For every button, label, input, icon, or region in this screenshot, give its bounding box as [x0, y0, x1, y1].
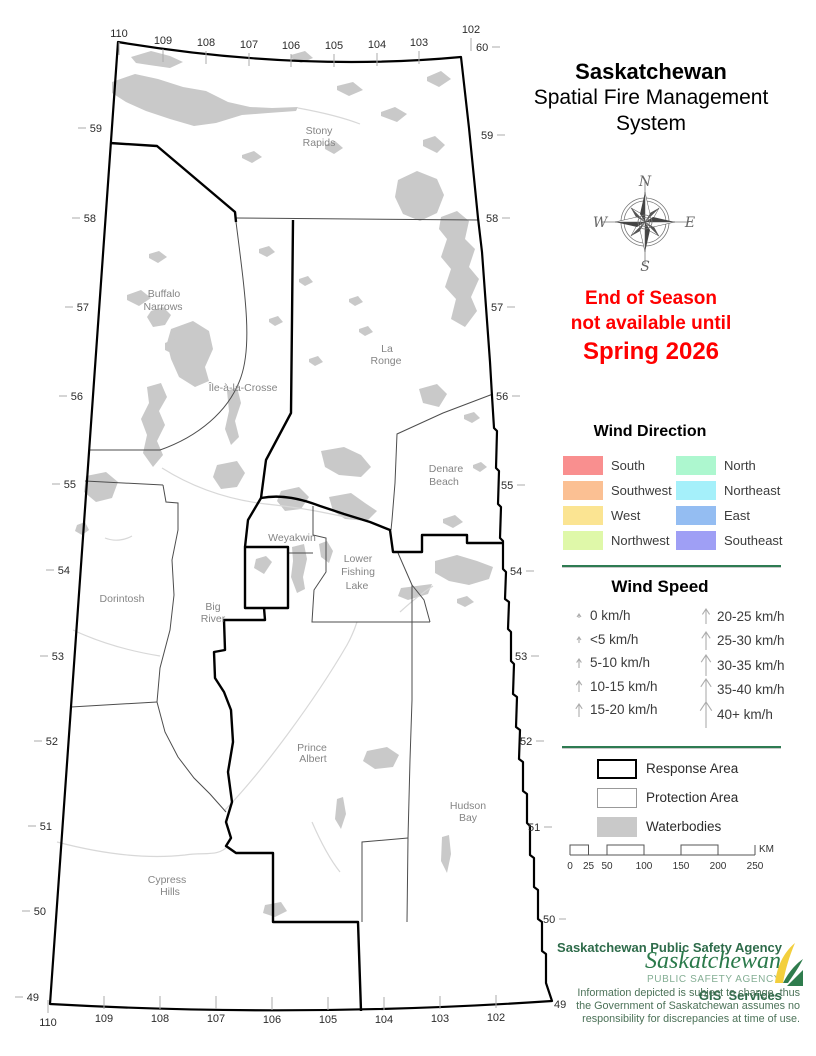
longitude-label: 107 — [207, 1013, 225, 1025]
place-label: Beach — [429, 476, 459, 488]
longitude-label: 103 — [431, 1013, 449, 1025]
response-area-swatch — [597, 759, 637, 779]
scale-tick-label: 25 — [583, 861, 595, 872]
scale-tick-label: 150 — [673, 861, 690, 872]
wind-direction-item: Southeast — [676, 528, 783, 553]
protection-area-boundaries — [71, 218, 493, 922]
wind-speed-label: 5-10 km/h — [590, 655, 650, 670]
place-label: Stony — [306, 125, 334, 137]
latitude-label: 50 — [34, 906, 46, 918]
wind-speed-item: 30-35 km/h — [695, 653, 785, 678]
wind-arrow-icon — [569, 702, 589, 718]
map-title-line2: Spatial Fire Management — [505, 85, 797, 111]
place-label: River — [201, 613, 226, 625]
place-label: Albert — [299, 753, 327, 765]
wind-direction-label: West — [611, 508, 640, 523]
longitude-label: 110 — [110, 28, 128, 40]
wind-speed-item: <5 km/h — [568, 628, 695, 652]
scale-tick-label: 0 — [567, 861, 573, 872]
longitude-label: 107 — [240, 39, 258, 51]
wind-direction-label: Northwest — [611, 533, 670, 548]
wind-arrow-cell — [695, 653, 717, 677]
wind-arrow-icon — [696, 607, 716, 625]
wind-arrow-cell — [568, 612, 590, 619]
scale-tick-label: 50 — [601, 861, 613, 872]
compass-east-label: E — [684, 215, 695, 231]
area-legend: Response Area Protection Area Waterbodie… — [597, 754, 738, 841]
legend-label: Waterbodies — [646, 819, 721, 834]
wind-arrow-icon — [696, 700, 716, 729]
place-label: Hudson — [450, 800, 486, 812]
wind-direction-label: Southwest — [611, 483, 672, 498]
place-label: Lake — [346, 580, 369, 592]
wind-arrow-icon — [569, 679, 589, 693]
season-notice: End of Season not available until Spring… — [505, 286, 797, 368]
wind-speed-label: <5 km/h — [590, 632, 638, 647]
longitude-label: 103 — [410, 37, 428, 49]
wind-speed-title: Wind Speed — [515, 577, 805, 597]
place-label: La — [381, 343, 393, 355]
disclaimer-line1: Information depicted is subject to chang… — [556, 987, 800, 1000]
wind-speed-label: 40+ km/h — [717, 707, 773, 722]
place-label: Cypress — [148, 874, 187, 886]
map-title-line3: System — [505, 111, 797, 137]
latitude-label: 59 — [90, 123, 102, 135]
wind-direction-item: East — [676, 503, 783, 528]
place-label: Lower — [344, 553, 373, 565]
scale-bar: 0 25 50 100 150 200 250 KM — [565, 842, 800, 878]
latitude-label: 56 — [496, 391, 508, 403]
section-divider — [562, 746, 781, 749]
latitude-label: 51 — [40, 821, 52, 833]
wind-arrow-icon — [696, 630, 716, 651]
wind-direction-column-2: NorthNortheastEastSoutheast — [676, 453, 783, 553]
wind-direction-swatch — [676, 506, 716, 525]
wind-direction-item: Southwest — [563, 478, 676, 503]
place-label: Narrows — [143, 301, 182, 313]
longitude-label: 106 — [263, 1014, 281, 1026]
wind-speed-label: 35-40 km/h — [717, 682, 785, 697]
protection-area-swatch — [597, 788, 637, 808]
longitude-label: 105 — [319, 1014, 337, 1026]
place-label: Île-à-la-Crosse — [208, 381, 278, 394]
wind-direction-swatch — [563, 506, 603, 525]
wind-arrow-cell — [568, 635, 590, 644]
wind-direction-swatch — [676, 481, 716, 500]
legend-label: Response Area — [646, 761, 738, 776]
agency-logo: Saskatchewan PUBLIC SAFETY AGENCY — [645, 942, 803, 990]
latitude-label: 57 — [491, 302, 503, 314]
latitude-label: 49 — [27, 992, 39, 1004]
longitude-label: 105 — [325, 40, 343, 52]
latitude-label: 57 — [77, 302, 89, 314]
wind-arrow-icon — [569, 657, 589, 669]
wind-direction-swatch — [563, 456, 603, 475]
wind-arrow-icon — [569, 612, 589, 619]
place-label: Buffalo — [148, 288, 181, 300]
place-label: Dorintosh — [100, 593, 145, 605]
compass-star — [615, 192, 675, 252]
wind-speed-item: 10-15 km/h — [568, 675, 695, 699]
latitude-label: 52 — [46, 736, 58, 748]
disclaimer: Information depicted is subject to chang… — [556, 987, 800, 1026]
wind-arrow-cell — [568, 702, 590, 718]
latitude-label: 59 — [481, 130, 493, 142]
longitude-label: 104 — [368, 39, 386, 51]
logo-wordmark: Saskatchewan — [645, 948, 781, 974]
latitude-label: 53 — [515, 651, 527, 663]
wind-arrow-icon — [569, 635, 589, 644]
latitude-label: 58 — [486, 213, 498, 225]
season-notice-line3: Spring 2026 — [505, 336, 797, 368]
compass-north-label: N — [638, 174, 652, 190]
place-label: Bay — [459, 812, 478, 824]
place-label: Denare — [429, 463, 464, 475]
wind-speed-column-1: 0 km/h<5 km/h5-10 km/h10-15 km/h15-20 km… — [568, 604, 695, 727]
legend-row-waterbodies: Waterbodies — [597, 812, 738, 841]
section-divider — [562, 565, 781, 568]
latitude-label: 56 — [71, 391, 83, 403]
wind-direction-item: South — [563, 453, 676, 478]
wind-arrow-cell — [695, 630, 717, 651]
wind-speed-item: 20-25 km/h — [695, 604, 785, 629]
map-sheet: StonyRapidsBuffaloNarrowsÎle-à-la-Crosse… — [0, 0, 816, 1056]
scale-unit-label: KM — [759, 844, 774, 855]
season-notice-line2: not available until — [505, 311, 797, 336]
wind-speed-item: 15-20 km/h — [568, 698, 695, 722]
compass-rose-icon: N E S W — [593, 170, 697, 274]
wind-arrow-cell — [568, 679, 590, 693]
latitude-label: 54 — [58, 565, 70, 577]
wind-speed-item: 25-30 km/h — [695, 629, 785, 654]
wind-direction-item: Northwest — [563, 528, 676, 553]
wind-direction-title: Wind Direction — [505, 423, 795, 441]
longitude-label: 102 — [462, 24, 480, 36]
saskatchewan-map: StonyRapidsBuffaloNarrowsÎle-à-la-Crosse… — [0, 0, 566, 1056]
wind-direction-item: North — [676, 453, 783, 478]
wind-direction-label: Northeast — [724, 483, 780, 498]
latitude-label: 52 — [520, 736, 532, 748]
wind-direction-label: East — [724, 508, 750, 523]
place-label: Rapids — [303, 137, 336, 149]
wind-arrow-cell — [568, 657, 590, 669]
map-title: Saskatchewan Spatial Fire Management Sys… — [505, 58, 797, 137]
wind-direction-item: West — [563, 503, 676, 528]
wind-direction-swatch — [676, 531, 716, 550]
wind-speed-label: 30-35 km/h — [717, 658, 785, 673]
legend-label: Protection Area — [646, 790, 738, 805]
compass-south-label: S — [640, 259, 650, 274]
wind-arrow-icon — [696, 653, 716, 677]
scale-tick-label: 100 — [636, 861, 653, 872]
latitude-label: 58 — [84, 213, 96, 225]
wind-direction-label: Southeast — [724, 533, 783, 548]
longitude-label: 109 — [154, 35, 172, 47]
longitude-label: 108 — [197, 37, 215, 49]
latitude-label: 60 — [476, 42, 488, 54]
province-outline — [50, 42, 552, 1010]
compass-west-label: W — [593, 215, 609, 231]
scale-tick-label: 200 — [710, 861, 727, 872]
wind-direction-label: South — [611, 458, 645, 473]
disclaimer-line3: responsibility for discrepancies at time… — [556, 1013, 800, 1026]
longitude-label: 102 — [487, 1012, 505, 1024]
season-notice-line1: End of Season — [505, 286, 797, 311]
legend-row-protection-area: Protection Area — [597, 783, 738, 812]
place-label: Ronge — [371, 355, 402, 367]
wind-arrow-cell — [695, 607, 717, 625]
wind-speed-label: 25-30 km/h — [717, 633, 785, 648]
latitude-label: 51 — [528, 822, 540, 834]
place-label: Big — [205, 601, 220, 613]
wind-direction-swatch — [563, 481, 603, 500]
wind-speed-item: 0 km/h — [568, 604, 695, 628]
latitude-label: 55 — [64, 479, 76, 491]
longitude-label: 108 — [151, 1013, 169, 1025]
latitude-label: 53 — [52, 651, 64, 663]
longitude-label: 106 — [282, 40, 300, 52]
latitude-label: 55 — [501, 480, 513, 492]
scale-tick-label: 250 — [747, 861, 764, 872]
wind-direction-legend: SouthSouthwestWestNorthwest NorthNorthea… — [563, 453, 783, 553]
place-label: Fishing — [341, 566, 375, 578]
disclaimer-line2: the Government of Saskatchewan assumes n… — [556, 1000, 800, 1013]
longitude-label: 110 — [39, 1017, 57, 1029]
waterbodies-swatch — [597, 817, 637, 837]
wind-direction-swatch — [563, 531, 603, 550]
wind-speed-column-2: 20-25 km/h25-30 km/h30-35 km/h35-40 km/h… — [695, 604, 785, 727]
wind-speed-item: 5-10 km/h — [568, 651, 695, 675]
longitude-label: 104 — [375, 1014, 393, 1026]
wind-speed-item: 40+ km/h — [695, 702, 785, 727]
map-title-line1: Saskatchewan — [505, 58, 797, 85]
wind-direction-column-1: SouthSouthwestWestNorthwest — [563, 453, 676, 553]
wind-direction-swatch — [676, 456, 716, 475]
legend-row-response-area: Response Area — [597, 754, 738, 783]
longitude-label: 109 — [95, 1013, 113, 1025]
wind-speed-label: 0 km/h — [590, 608, 631, 623]
wind-direction-label: North — [724, 458, 756, 473]
logo-subtitle: PUBLIC SAFETY AGENCY — [647, 974, 781, 985]
wind-speed-label: 10-15 km/h — [590, 679, 658, 694]
wind-speed-label: 15-20 km/h — [590, 702, 658, 717]
wind-speed-legend: 0 km/h<5 km/h5-10 km/h10-15 km/h15-20 km… — [568, 604, 785, 727]
wind-direction-item: Northeast — [676, 478, 783, 503]
wind-speed-item: 35-40 km/h — [695, 678, 785, 703]
wind-speed-label: 20-25 km/h — [717, 609, 785, 624]
place-label: Weyakwin — [268, 532, 316, 544]
place-label: Hills — [160, 886, 180, 898]
wind-arrow-cell — [695, 700, 717, 729]
